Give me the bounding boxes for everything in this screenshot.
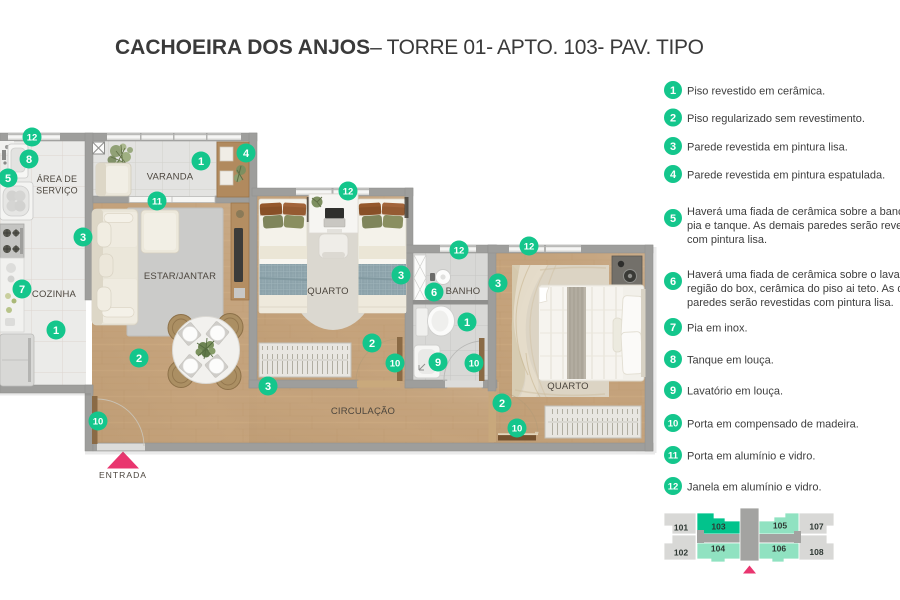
svg-text:CACHOEIRA DOS ANJOS– TORRE 01-: CACHOEIRA DOS ANJOS– TORRE 01- APTO. 103…	[115, 36, 704, 59]
svg-text:2: 2	[136, 353, 142, 365]
svg-text:108: 108	[809, 547, 823, 557]
svg-text:Parede revestida em pintura es: Parede revestida em pintura espatulada.	[687, 170, 885, 182]
svg-text:6: 6	[670, 276, 676, 288]
svg-text:BANHO: BANHO	[446, 286, 481, 297]
svg-text:8: 8	[670, 354, 676, 366]
svg-text:8: 8	[26, 154, 32, 166]
svg-text:Piso revestido em cerâmica.: Piso revestido em cerâmica.	[687, 86, 825, 98]
svg-text:Janela em alumínio e vidro.: Janela em alumínio e vidro.	[687, 482, 822, 494]
svg-text:11: 11	[668, 450, 679, 461]
svg-text:SERVIÇO: SERVIÇO	[36, 186, 78, 196]
svg-text:Haverá uma fiada de cerâmica s: Haverá uma fiada de cerâmica sobre o lav…	[687, 269, 900, 309]
svg-text:Pia em inox.: Pia em inox.	[687, 323, 748, 335]
svg-text:9: 9	[435, 357, 441, 369]
svg-text:104: 104	[711, 544, 725, 554]
svg-text:2: 2	[369, 338, 375, 350]
svg-text:2: 2	[670, 112, 676, 124]
svg-text:1: 1	[670, 85, 676, 97]
svg-text:102: 102	[674, 548, 688, 558]
svg-text:101: 101	[674, 523, 688, 533]
svg-text:10: 10	[93, 417, 104, 428]
svg-text:3: 3	[80, 232, 86, 244]
svg-text:103: 103	[711, 522, 725, 532]
svg-text:3: 3	[670, 141, 676, 153]
svg-text:12: 12	[668, 481, 679, 492]
svg-text:Porta em compensado de madeira: Porta em compensado de madeira.	[687, 419, 859, 431]
svg-text:5: 5	[5, 173, 11, 185]
svg-text:107: 107	[809, 522, 823, 532]
svg-text:1: 1	[464, 317, 470, 329]
svg-text:Piso regularizado sem revestim: Piso regularizado sem revestimento.	[687, 113, 865, 125]
svg-text:6: 6	[431, 287, 437, 299]
svg-text:4: 4	[243, 148, 250, 160]
svg-text:11: 11	[152, 197, 163, 208]
svg-text:12: 12	[454, 246, 465, 257]
svg-text:105: 105	[773, 521, 787, 531]
svg-text:12: 12	[524, 242, 535, 253]
svg-text:ENTRADA: ENTRADA	[99, 470, 147, 480]
svg-text:10: 10	[668, 418, 679, 429]
svg-text:ESTAR/JANTAR: ESTAR/JANTAR	[144, 271, 216, 282]
svg-text:2: 2	[499, 398, 505, 410]
svg-text:3: 3	[495, 278, 501, 290]
svg-text:4: 4	[670, 169, 677, 181]
svg-text:Parede revestida em pintura li: Parede revestida em pintura lisa.	[687, 142, 848, 154]
svg-text:CIRCULAÇÃO: CIRCULAÇÃO	[331, 406, 395, 417]
svg-text:5: 5	[670, 213, 676, 225]
svg-text:12: 12	[343, 187, 354, 198]
svg-text:Porta em alumínio e vidro.: Porta em alumínio e vidro.	[687, 451, 815, 463]
svg-text:10: 10	[390, 359, 401, 370]
svg-text:ÁREA DE: ÁREA DE	[37, 174, 77, 184]
svg-text:VARANDA: VARANDA	[147, 172, 194, 183]
svg-text:Lavatório em louça.: Lavatório em louça.	[687, 386, 783, 398]
svg-text:7: 7	[19, 284, 25, 296]
svg-text:QUARTO: QUARTO	[307, 286, 349, 297]
svg-text:COZINHA: COZINHA	[32, 289, 77, 300]
svg-text:12: 12	[27, 133, 38, 144]
svg-text:1: 1	[198, 156, 204, 168]
svg-text:QUARTO: QUARTO	[547, 381, 589, 392]
svg-text:10: 10	[469, 359, 480, 370]
svg-text:1: 1	[53, 325, 59, 337]
svg-text:10: 10	[512, 424, 523, 435]
svg-text:106: 106	[772, 544, 786, 554]
svg-text:9: 9	[670, 385, 676, 397]
svg-text:3: 3	[398, 270, 404, 282]
svg-text:Tanque em louça.: Tanque em louça.	[687, 355, 774, 367]
svg-text:3: 3	[265, 381, 271, 393]
svg-text:7: 7	[670, 322, 676, 334]
